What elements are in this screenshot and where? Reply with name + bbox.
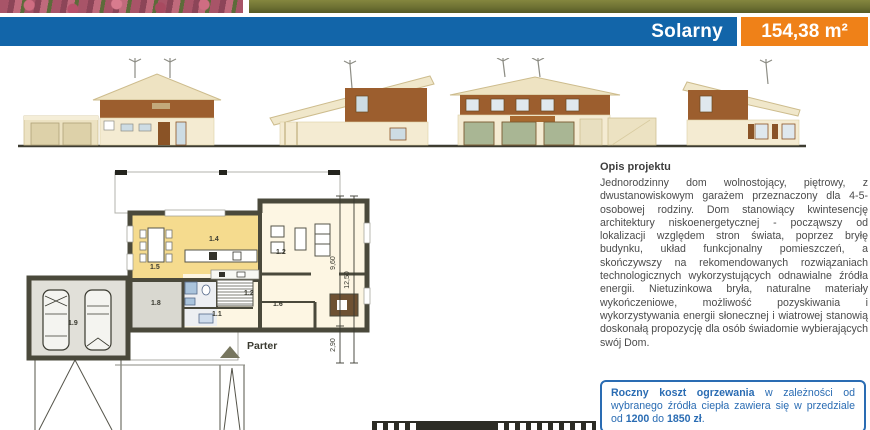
- heating-cost-to: do: [649, 413, 667, 425]
- project-name: Solarny: [651, 21, 723, 43]
- elevation-front-garage: [24, 58, 221, 145]
- floor-label: Parter: [247, 340, 277, 352]
- heating-cost-max: 1850 zł: [667, 413, 702, 425]
- room-label-kitchen: 1.4: [209, 236, 219, 243]
- upper-floor-wall-segment: [420, 421, 494, 430]
- heating-cost-min: 1200: [626, 413, 650, 425]
- description-heading: Opis projektu: [600, 161, 868, 173]
- project-sheet-page: Solarny 154,38 m²: [0, 0, 870, 430]
- room-label-hall: 1.1: [212, 311, 222, 318]
- elevation-side-left: [270, 60, 434, 145]
- project-title-bar: Solarny: [0, 17, 737, 46]
- elevations-row: [0, 58, 870, 154]
- room-label-utility: 1.6: [273, 301, 283, 308]
- upper-floor-plan-peek: [372, 421, 596, 430]
- flowers-photo: [0, 0, 243, 13]
- heating-cost-box: Roczny koszt ogrzewania w zależności od …: [600, 380, 866, 430]
- room-label-living: 1.2: [276, 249, 286, 256]
- room-label-garage: 1.9: [68, 320, 78, 327]
- room-label-corridor: 1.2: [244, 290, 254, 297]
- driveway-markings: [35, 360, 245, 430]
- elevation-front: [450, 58, 656, 145]
- heating-cost-end: .: [702, 413, 705, 425]
- room-label-mudroom: 1.8: [151, 300, 161, 307]
- dimension-depth-porch: 2,90: [330, 338, 337, 352]
- ground-floor-plan: 1.9 1.8 1.5 1.4 1.2 1.2 1.6 1.1 9,60 2,9…: [15, 168, 375, 430]
- dimension-depth-main: 9,60: [330, 256, 337, 270]
- room-label-dining: 1.5: [150, 264, 160, 271]
- car: [43, 290, 69, 350]
- description-body: Jednorodzinny dom wolnostojący, piętrowy…: [600, 177, 868, 350]
- heating-cost-intro: Roczny koszt ogrzewania: [611, 387, 755, 399]
- garden-photo: [249, 0, 870, 13]
- car: [85, 290, 111, 350]
- elevation-side-right: [683, 59, 800, 145]
- entry-porch: [130, 330, 238, 360]
- dimension-depth-total: 12,50: [344, 271, 351, 289]
- dining-table: [140, 228, 172, 262]
- area-badge: 154,38 m²: [741, 17, 868, 46]
